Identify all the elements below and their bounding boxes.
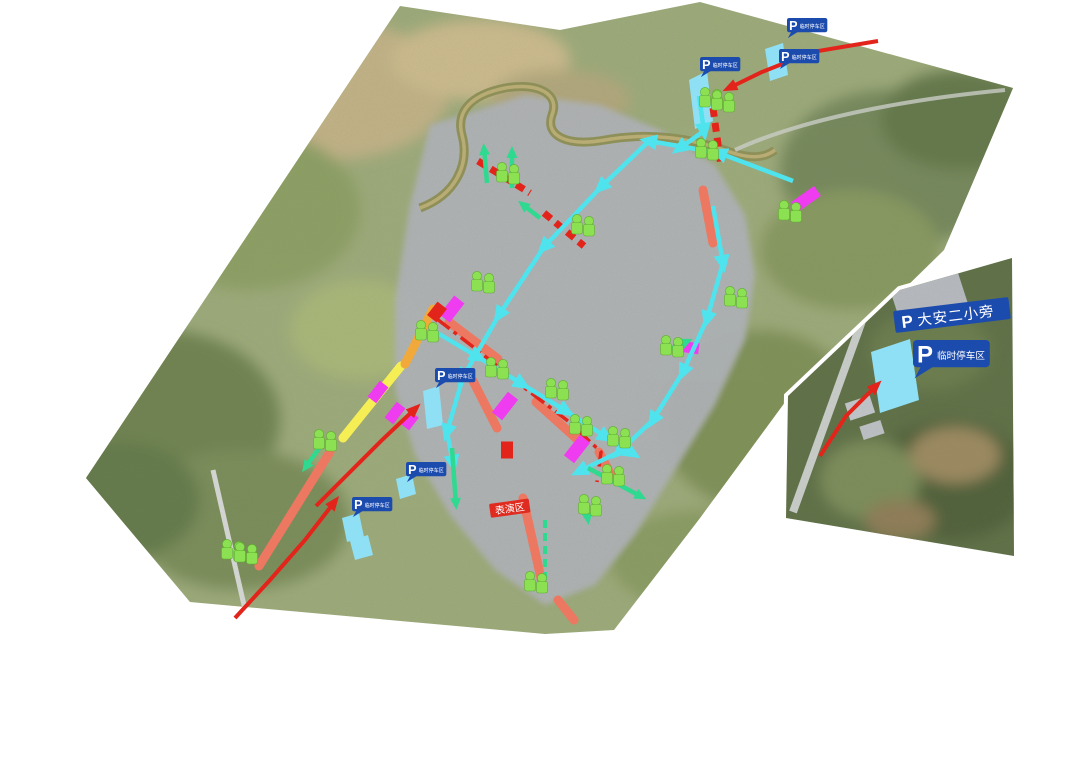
parking-p-glyph: P — [408, 463, 416, 477]
panel-sign-p-glyph: P — [900, 312, 914, 332]
parking-label-text: 临时停车区 — [792, 54, 817, 61]
legend: 临时停车路线 临时停车区 P 临时停车区 行程路线 限行区 列队区 表演区 疏散… — [0, 630, 1080, 763]
parking-label-text: 临时停车区 — [419, 467, 444, 474]
parking-p-glyph: P — [789, 19, 797, 33]
event-traffic-map-page: P临时停车区P临时停车区P临时停车区P临时停车区P临时停车区P临时停车区P临时停… — [0, 0, 1080, 763]
parking-label-text: 临时停车区 — [937, 350, 985, 362]
parking-label-text: 临时停车区 — [713, 62, 738, 69]
parking-p-glyph: P — [437, 369, 445, 383]
parking-label-text: 临时停车区 — [800, 23, 825, 30]
parking-label-text: 临时停车区 — [448, 373, 473, 380]
evacuation-arrow — [484, 148, 487, 183]
parking-p-glyph: P — [702, 58, 710, 72]
stage-marker — [501, 442, 513, 459]
parking-p-glyph: P — [781, 50, 789, 64]
parking-p-glyph: P — [354, 498, 362, 512]
parking-label-text: 临时停车区 — [365, 502, 390, 509]
parking-p-glyph: P — [917, 341, 933, 368]
